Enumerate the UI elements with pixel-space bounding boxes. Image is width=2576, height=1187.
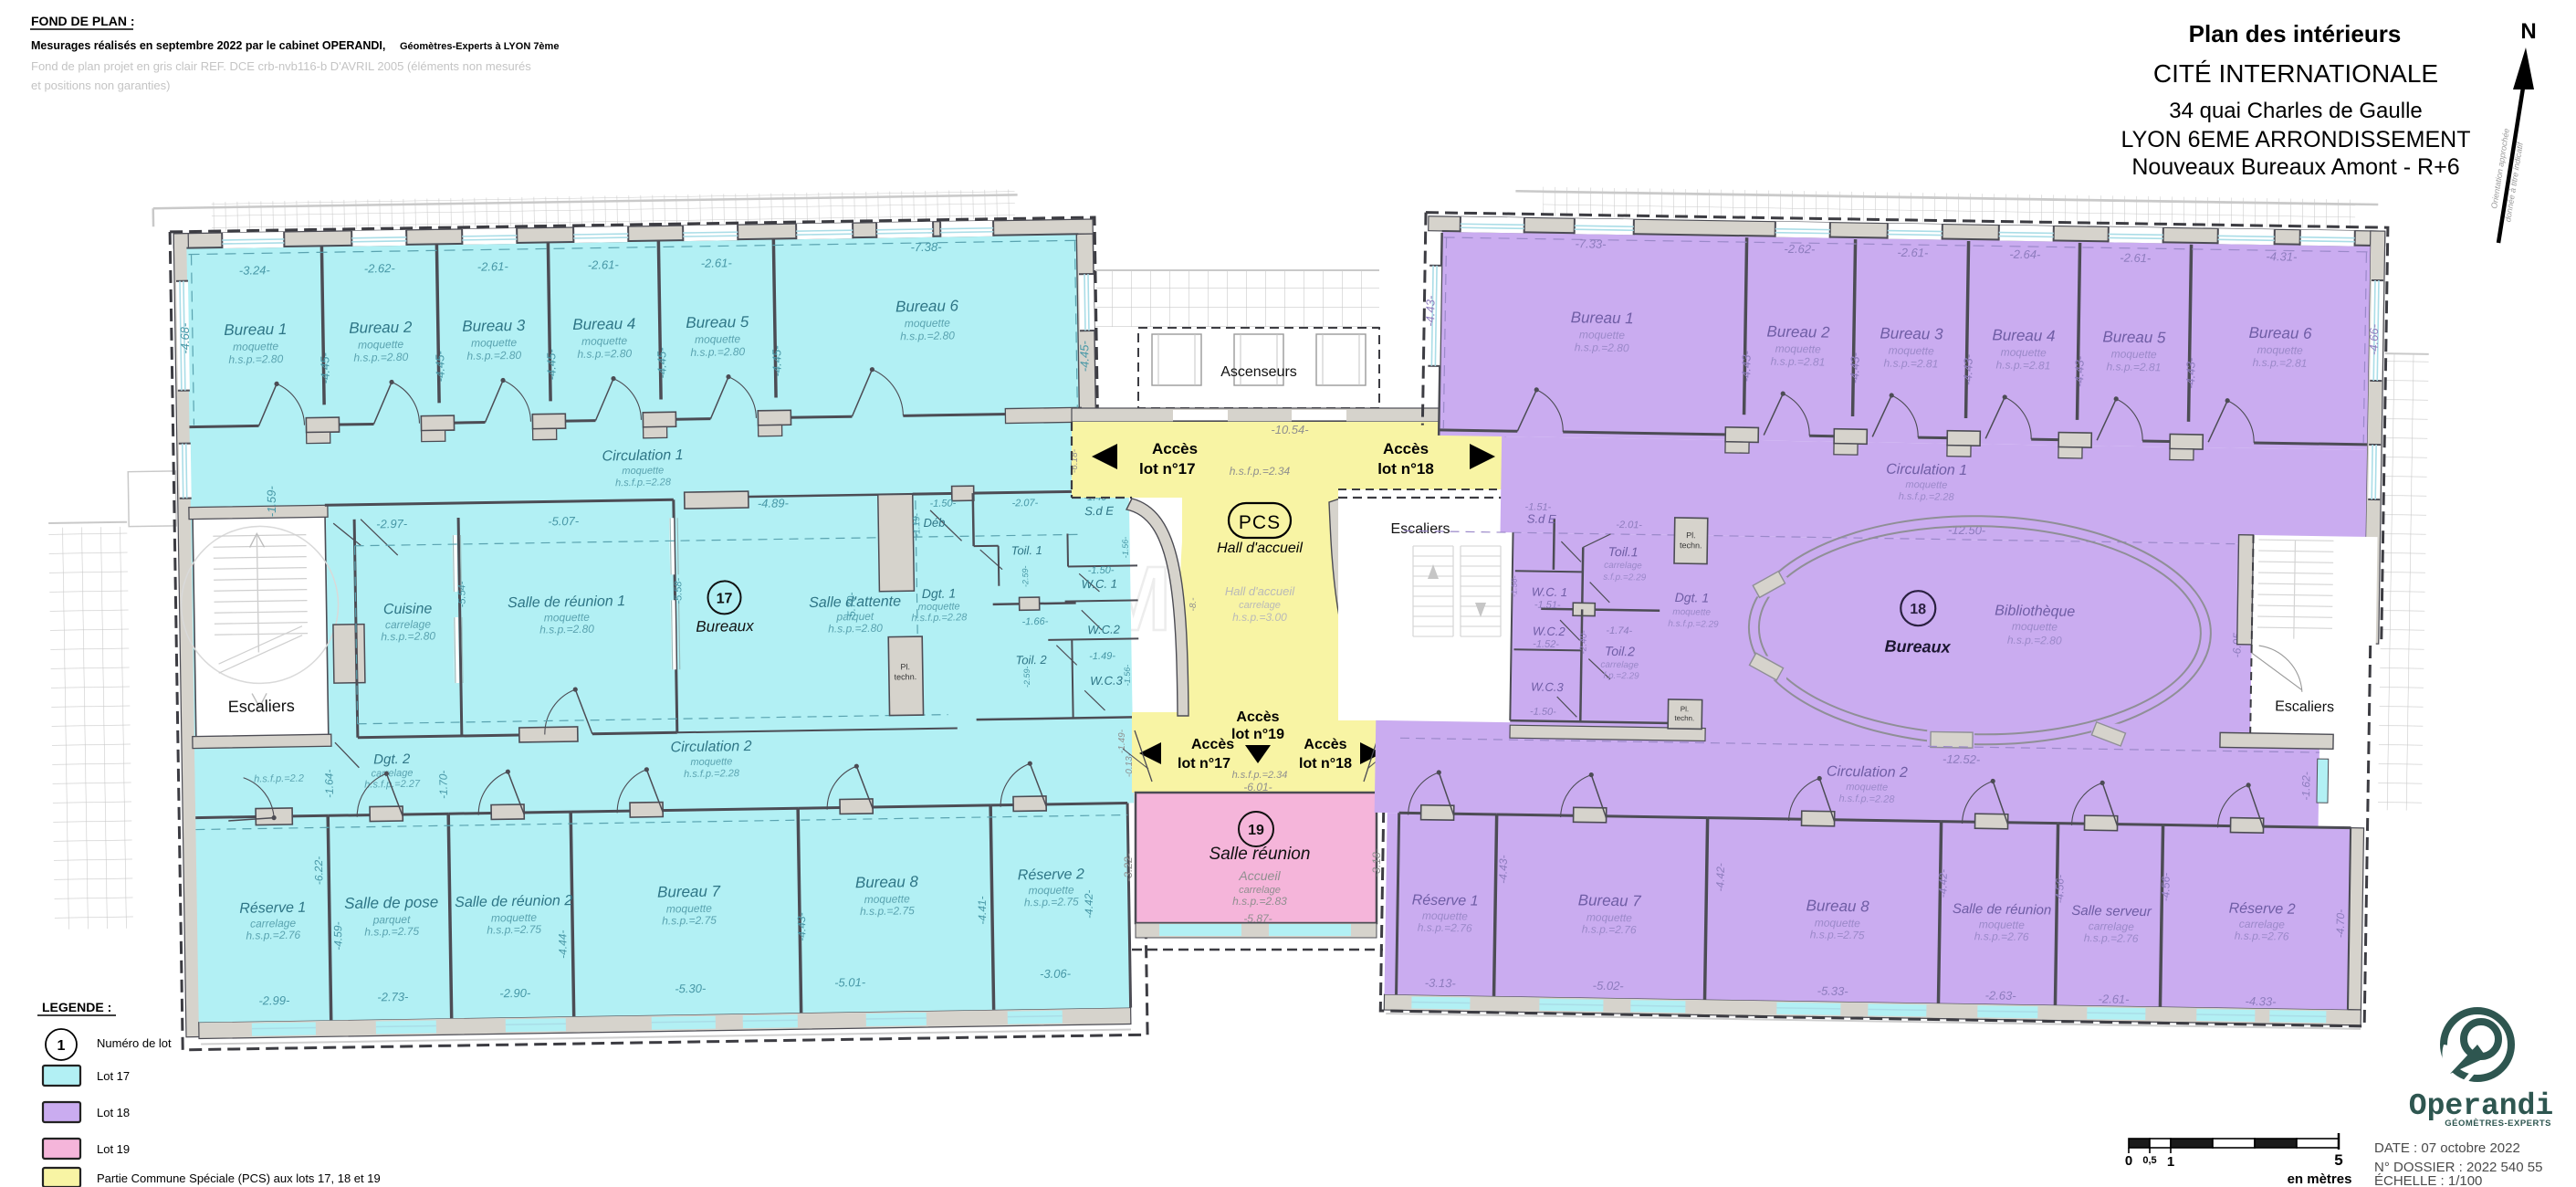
svg-text:PCS: PCS xyxy=(1239,512,1281,533)
svg-text:h.s.p.=2.75: h.s.p.=2.75 xyxy=(1024,895,1079,909)
svg-text:-2.99-: -2.99- xyxy=(258,993,290,1008)
svg-text:ÉCHELLE : 1/100: ÉCHELLE : 1/100 xyxy=(2374,1173,2482,1187)
svg-text:-1.64-: -1.64- xyxy=(322,769,335,798)
svg-text:5: 5 xyxy=(2334,1151,2342,1169)
svg-text:LYON 6EME ARRONDISSEMENT: LYON 6EME ARRONDISSEMENT xyxy=(2121,127,2471,152)
svg-text:-3.06-: -3.06- xyxy=(1040,967,1072,982)
svg-text:-1.49-: -1.49- xyxy=(1117,729,1127,753)
svg-text:h.s.p.=2.76: h.s.p.=2.76 xyxy=(2084,931,2139,945)
svg-text:Salle de réunion 1: Salle de réunion 1 xyxy=(508,593,625,611)
svg-text:f.p.=2.29: f.p.=2.29 xyxy=(1603,671,1639,682)
svg-text:h.s.p.=2.80: h.s.p.=2.80 xyxy=(228,352,283,366)
svg-text:-2.07-: -2.07- xyxy=(1011,498,1038,509)
svg-text:Salle de pose: Salle de pose xyxy=(344,893,438,912)
svg-text:moquette: moquette xyxy=(1579,328,1626,341)
svg-text:-1.49-: -1.49- xyxy=(1089,651,1115,662)
svg-text:Circulation 2: Circulation 2 xyxy=(670,739,751,755)
svg-text:h.s.p.=2.80: h.s.p.=2.80 xyxy=(1575,341,1629,354)
svg-text:Bureau 7: Bureau 7 xyxy=(657,883,721,901)
svg-text:N: N xyxy=(2520,19,2536,44)
svg-text:s.f.p.=2.29: s.f.p.=2.29 xyxy=(1603,572,1647,583)
svg-text:LEGENDE :: LEGENDE : xyxy=(42,1000,111,1014)
svg-text:h.s.p.=2.80: h.s.p.=2.80 xyxy=(381,629,435,643)
svg-text:h.s.p.=2.75: h.s.p.=2.75 xyxy=(487,923,541,937)
svg-text:19: 19 xyxy=(1248,823,1264,838)
svg-text:S.d E: S.d E xyxy=(1527,511,1556,526)
svg-text:h.s.p.=2.81: h.s.p.=2.81 xyxy=(1995,358,2050,372)
svg-text:Bureau 4: Bureau 4 xyxy=(1992,326,2055,344)
svg-text:FOND DE PLAN :: FOND DE PLAN : xyxy=(31,14,135,28)
svg-text:moquette: moquette xyxy=(358,338,404,352)
svg-text:-1.62-: -1.62- xyxy=(2299,772,2312,801)
svg-text:W.C. 1: W.C. 1 xyxy=(1082,577,1117,592)
svg-text:Escaliers: Escaliers xyxy=(228,697,295,716)
svg-text:-1.51-: -1.51- xyxy=(1534,600,1561,611)
svg-text:techn.: techn. xyxy=(1674,714,1694,722)
svg-text:W.C.3: W.C.3 xyxy=(1090,674,1124,688)
svg-text:-4.59-: -4.59- xyxy=(331,921,344,951)
svg-text:Bureau 4: Bureau 4 xyxy=(572,315,635,333)
svg-text:h.s.p.=2.81: h.s.p.=2.81 xyxy=(2253,356,2308,370)
svg-text:h.s.p.=2.80: h.s.p.=2.80 xyxy=(577,347,632,361)
svg-text:Salle réunion: Salle réunion xyxy=(1209,845,1311,864)
svg-text:Mesurages réalisés en septembr: Mesurages réalisés en septembre 2022 par… xyxy=(31,39,385,52)
svg-text:Escaliers: Escaliers xyxy=(2275,699,2334,715)
svg-text:-2.64-: -2.64- xyxy=(2009,247,2041,262)
svg-text:Cuisine: Cuisine xyxy=(383,601,433,617)
svg-text:h.s.p.=2.80: h.s.p.=2.80 xyxy=(690,345,745,359)
svg-text:-4.66-: -4.66- xyxy=(2367,323,2382,355)
svg-text:Accès: Accès xyxy=(1152,440,1198,457)
svg-text:h.s.p.=2.80: h.s.p.=2.80 xyxy=(539,623,594,636)
svg-text:-4.42-: -4.42- xyxy=(1083,889,1095,919)
svg-text:Pl.: Pl. xyxy=(1681,705,1689,713)
svg-text:moquette: moquette xyxy=(1905,479,1947,491)
svg-text:-4.45-: -4.45- xyxy=(318,352,332,384)
svg-text:-2.61-: -2.61- xyxy=(2098,992,2130,1006)
svg-text:W.C.2: W.C.2 xyxy=(1533,625,1566,639)
svg-text:-1.56-: -1.56- xyxy=(1121,537,1130,559)
svg-text:Bureau 6: Bureau 6 xyxy=(895,297,959,315)
svg-text:Lot 19: Lot 19 xyxy=(97,1142,130,1156)
svg-text:0: 0 xyxy=(2125,1153,2132,1169)
svg-text:Pl.: Pl. xyxy=(900,662,910,671)
svg-text:Bureau 3: Bureau 3 xyxy=(1880,324,1943,342)
svg-text:-3.22-: -3.22- xyxy=(1122,853,1135,881)
svg-text:-5.07-: -5.07- xyxy=(548,514,580,529)
svg-text:Géomètres-Experts à LYON 7ème: Géomètres-Experts à LYON 7ème xyxy=(400,41,559,52)
svg-text:-2.97-: -2.97- xyxy=(376,517,408,531)
svg-text:Bureau 3: Bureau 3 xyxy=(462,317,526,335)
svg-text:h.s.p.=2.75: h.s.p.=2.75 xyxy=(1810,928,1865,941)
svg-text:Lot 18: Lot 18 xyxy=(97,1106,130,1119)
svg-text:GÉOMÈTRES-EXPERTS: GÉOMÈTRES-EXPERTS xyxy=(2445,1119,2551,1129)
svg-text:moquette: moquette xyxy=(695,332,741,346)
svg-text:-4.70-: -4.70- xyxy=(2334,909,2347,939)
svg-text:h.s.p.=3.00: h.s.p.=3.00 xyxy=(1232,611,1287,624)
svg-text:h.s.f.p.=2.34: h.s.f.p.=2.34 xyxy=(1230,465,1291,478)
svg-text:moquette: moquette xyxy=(471,336,518,350)
svg-text:-6.22-: -6.22- xyxy=(312,856,325,886)
svg-text:Accueil: Accueil xyxy=(1238,868,1281,883)
svg-text:-12.50-: -12.50- xyxy=(1948,523,1986,538)
svg-text:Réserve 1: Réserve 1 xyxy=(239,900,306,917)
svg-text:h.s.f.p.=2.28: h.s.f.p.=2.28 xyxy=(1838,793,1895,805)
svg-text:Accès: Accès xyxy=(1383,440,1429,457)
svg-text:-2.01-: -2.01- xyxy=(1616,520,1642,530)
svg-text:lot n°18: lot n°18 xyxy=(1377,460,1434,478)
svg-text:-1.51-: -1.51- xyxy=(1524,501,1551,512)
svg-text:-2.61-: -2.61- xyxy=(588,257,620,272)
svg-text:-2.61-: -2.61- xyxy=(477,259,509,274)
svg-text:Bureau 5: Bureau 5 xyxy=(686,313,749,331)
svg-text:-5.30-: -5.30- xyxy=(675,982,707,996)
svg-text:1: 1 xyxy=(58,1038,66,1054)
svg-text:Circulation 1: Circulation 1 xyxy=(602,447,683,464)
svg-text:Salle de réunion: Salle de réunion xyxy=(1953,901,2052,919)
svg-text:h.s.p.=2.76: h.s.p.=2.76 xyxy=(246,929,300,942)
svg-text:h.s.f.p.=2.28: h.s.f.p.=2.28 xyxy=(1899,491,1955,503)
svg-text:h.s.f.p.=2.28: h.s.f.p.=2.28 xyxy=(684,768,740,780)
svg-text:lot n°17: lot n°17 xyxy=(1139,460,1196,478)
svg-text:-4.45-: -4.45- xyxy=(654,347,669,379)
svg-text:34 quai Charles de Gaulle: 34 quai Charles de Gaulle xyxy=(2169,99,2423,123)
svg-text:-1.56-: -1.56- xyxy=(1509,575,1518,597)
svg-text:-4.42-: -4.42- xyxy=(1713,863,1726,892)
svg-text:h.s.p.=2.80: h.s.p.=2.80 xyxy=(828,622,883,636)
svg-text:Toil.2: Toil.2 xyxy=(1605,644,1635,659)
svg-text:moquette: moquette xyxy=(1775,342,1822,356)
svg-text:carrelage: carrelage xyxy=(1604,561,1642,572)
svg-text:-3.18-: -3.18- xyxy=(1370,848,1383,877)
svg-text:1: 1 xyxy=(2167,1154,2174,1170)
svg-text:-1.52-: -1.52- xyxy=(1533,639,1559,650)
svg-text:Bureau 6: Bureau 6 xyxy=(2248,324,2312,342)
svg-text:-4.45-: -4.45- xyxy=(544,349,559,381)
svg-text:Réserve 2: Réserve 2 xyxy=(1018,867,1084,883)
svg-text:-4.56-: -4.56- xyxy=(2159,873,2172,902)
svg-text:-2.61-: -2.61- xyxy=(701,256,733,270)
svg-text:-12.52-: -12.52- xyxy=(1942,752,1981,767)
svg-text:-7.33-: -7.33- xyxy=(1575,236,1607,251)
svg-text:-4.45-: -4.45- xyxy=(433,351,447,383)
svg-text:Accès: Accès xyxy=(1304,737,1346,752)
svg-text:h.s.p.=2.81: h.s.p.=2.81 xyxy=(1884,357,1939,371)
svg-text:h.s.p.=2.75: h.s.p.=2.75 xyxy=(364,925,419,939)
svg-text:-5.70-: -5.70- xyxy=(844,592,857,621)
svg-text:18: 18 xyxy=(1910,602,1926,617)
svg-text:moquette: moquette xyxy=(581,334,628,348)
svg-text:lot n°19: lot n°19 xyxy=(1231,727,1284,742)
svg-text:-5.33-: -5.33- xyxy=(1817,983,1849,998)
svg-text:Partie Commune Spéciale (PCS): Partie Commune Spéciale (PCS) aux lots 1… xyxy=(97,1171,381,1185)
svg-text:-4.31-: -4.31- xyxy=(2266,249,2298,264)
svg-text:-1.50-: -1.50- xyxy=(929,498,956,509)
svg-text:h.s.p.=2.81: h.s.p.=2.81 xyxy=(1771,355,1826,369)
svg-text:-4.43-: -4.43- xyxy=(2183,357,2198,389)
svg-text:-1.74-: -1.74- xyxy=(1606,625,1632,636)
svg-text:moquette: moquette xyxy=(233,340,279,353)
svg-text:Fond de plan projet en gris cl: Fond de plan projet en gris clair REF. D… xyxy=(31,59,531,73)
svg-text:h.s.p.=2.76: h.s.p.=2.76 xyxy=(2235,930,2289,943)
svg-text:-4.43-: -4.43- xyxy=(2072,355,2087,387)
svg-text:-1.70-: -1.70- xyxy=(436,771,449,800)
svg-text:-4.43-: -4.43- xyxy=(1496,855,1509,884)
svg-text:Dgt. 2: Dgt. 2 xyxy=(373,751,411,768)
svg-text:-5.58-: -5.58- xyxy=(673,577,684,604)
svg-text:-5.01-: -5.01- xyxy=(834,975,866,990)
svg-text:-3.13-: -3.13- xyxy=(1425,976,1457,991)
svg-text:Salle de réunion 2: Salle de réunion 2 xyxy=(455,893,572,910)
svg-text:0,5: 0,5 xyxy=(2142,1155,2156,1166)
svg-text:Bureau 5: Bureau 5 xyxy=(2102,328,2166,346)
svg-text:Déb.: Déb. xyxy=(923,516,948,530)
svg-text:-2.90-: -2.90- xyxy=(499,986,531,1001)
svg-text:W.C.3: W.C.3 xyxy=(1531,680,1565,695)
svg-text:-2.62-: -2.62- xyxy=(364,261,396,276)
svg-text:Dgt. 1: Dgt. 1 xyxy=(1675,590,1710,605)
svg-text:S.d E: S.d E xyxy=(1084,504,1114,519)
svg-text:Circulation 2: Circulation 2 xyxy=(1827,764,1908,781)
svg-text:h.s.p.=2.76: h.s.p.=2.76 xyxy=(1582,922,1637,936)
svg-text:moquette: moquette xyxy=(2012,620,2058,634)
svg-text:-2.59-: -2.59- xyxy=(1021,565,1030,587)
svg-text:Ascenseurs: Ascenseurs xyxy=(1220,364,1297,380)
svg-text:-4.42-: -4.42- xyxy=(1936,869,1949,898)
svg-text:Accès: Accès xyxy=(1236,709,1279,725)
svg-text:Numéro de lot: Numéro de lot xyxy=(97,1036,172,1050)
svg-text:-4.56-: -4.56- xyxy=(2053,875,2066,904)
svg-text:-4.68-: -4.68- xyxy=(178,322,193,354)
svg-text:-1.19-: -1.19- xyxy=(912,512,922,537)
svg-text:techn.: techn. xyxy=(1680,541,1702,550)
svg-text:CITÉ INTERNATIONALE: CITÉ INTERNATIONALE xyxy=(2153,59,2438,88)
svg-text:-2.61-: -2.61- xyxy=(1897,246,1929,260)
svg-text:DATE : 07 octobre 2022: DATE : 07 octobre 2022 xyxy=(2374,1140,2520,1156)
svg-text:-2.62-: -2.62- xyxy=(1784,242,1816,257)
svg-text:Toil. 2: Toil. 2 xyxy=(1015,653,1047,667)
svg-text:moquette: moquette xyxy=(1672,607,1711,618)
svg-text:moquette: moquette xyxy=(1846,782,1888,793)
svg-text:Bureaux: Bureaux xyxy=(696,617,754,636)
svg-text:-2.61-: -2.61- xyxy=(2120,251,2152,266)
svg-text:moquette: moquette xyxy=(2257,343,2304,357)
svg-text:h.s.f.p.=2.28: h.s.f.p.=2.28 xyxy=(911,612,968,624)
svg-text:carrelage: carrelage xyxy=(371,768,413,780)
svg-text:Dgt. 1: Dgt. 1 xyxy=(922,585,957,601)
svg-text:moquette: moquette xyxy=(2001,346,2047,360)
svg-text:et positions non garanties): et positions non garanties) xyxy=(31,79,170,92)
svg-text:Nouveaux Bureaux Amont - R+6: Nouveaux Bureaux Amont - R+6 xyxy=(2131,154,2459,180)
svg-text:Lot 17: Lot 17 xyxy=(97,1069,130,1083)
svg-text:h.s.p.=2.80: h.s.p.=2.80 xyxy=(900,329,955,342)
svg-text:-1.56-: -1.56- xyxy=(1123,665,1132,687)
svg-text:h.s.f.p.=2.28: h.s.f.p.=2.28 xyxy=(615,477,672,488)
svg-text:en mètres: en mètres xyxy=(2288,1171,2352,1187)
svg-text:lot n°18: lot n°18 xyxy=(1299,756,1352,772)
svg-text:Réserve 1: Réserve 1 xyxy=(1412,893,1479,909)
svg-text:lot n°17: lot n°17 xyxy=(1178,756,1230,772)
svg-text:-4.44-: -4.44- xyxy=(556,930,569,959)
svg-text:Toil. 1: Toil. 1 xyxy=(1011,543,1042,558)
svg-text:Hall d'accueil: Hall d'accueil xyxy=(1225,584,1295,598)
svg-text:Bureau 7: Bureau 7 xyxy=(1578,891,1642,909)
svg-text:h.s.p.=2.80: h.s.p.=2.80 xyxy=(466,349,521,362)
svg-text:-4.41-: -4.41- xyxy=(976,896,989,925)
svg-text:Hall d'accueil: Hall d'accueil xyxy=(1217,541,1303,556)
svg-text:-4.43-: -4.43- xyxy=(1848,352,1862,383)
svg-text:Plan des intérieurs: Plan des intérieurs xyxy=(2189,20,2402,47)
svg-text:Bureaux: Bureaux xyxy=(1884,637,1951,657)
svg-text:-7.38-: -7.38- xyxy=(910,240,942,255)
svg-text:h.s.p.=2.83: h.s.p.=2.83 xyxy=(1232,895,1287,908)
svg-text:W.C.2: W.C.2 xyxy=(1087,623,1121,637)
svg-text:h.s.f.p.=2.2: h.s.f.p.=2.2 xyxy=(254,773,304,785)
svg-text:-5.54-: -5.54- xyxy=(456,581,467,607)
svg-text:Bureau 1: Bureau 1 xyxy=(224,320,287,339)
svg-text:Bureau 2: Bureau 2 xyxy=(1766,323,1830,341)
svg-text:moquette: moquette xyxy=(1889,344,1935,358)
svg-text:moquette: moquette xyxy=(918,601,960,613)
svg-text:-1.59-: -1.59- xyxy=(265,485,279,517)
svg-text:-1.50-: -1.50- xyxy=(1530,707,1556,718)
svg-text:h.s.f.p.=2.34: h.s.f.p.=2.34 xyxy=(1232,770,1288,781)
svg-text:h.s.p.=2.76: h.s.p.=2.76 xyxy=(1974,930,2029,943)
svg-text:Bureau 8: Bureau 8 xyxy=(855,873,919,891)
svg-text:h.s.p.=2.80: h.s.p.=2.80 xyxy=(353,351,408,364)
svg-text:-1.66-: -1.66- xyxy=(1021,616,1048,627)
svg-text:-4.45-: -4.45- xyxy=(770,345,784,377)
svg-text:carrelage: carrelage xyxy=(1600,660,1639,671)
svg-text:-4.45-: -4.45- xyxy=(1077,340,1092,372)
svg-text:moquette: moquette xyxy=(690,756,732,768)
svg-text:moquette: moquette xyxy=(2111,347,2158,361)
svg-text:Bibliothèque: Bibliothèque xyxy=(1995,604,2075,620)
svg-text:-4.43-: -4.43- xyxy=(1961,353,1975,385)
svg-text:Circulation 1: Circulation 1 xyxy=(1886,462,1967,478)
svg-text:-4.33-: -4.33- xyxy=(2245,994,2277,1009)
svg-text:techn.: techn. xyxy=(895,672,917,681)
svg-text:-4.43-: -4.43- xyxy=(1739,350,1754,382)
svg-text:h.s.p.=2.75: h.s.p.=2.75 xyxy=(662,914,717,928)
svg-text:Toil.1: Toil.1 xyxy=(1608,544,1639,560)
svg-text:Bureau 8: Bureau 8 xyxy=(1806,897,1869,915)
svg-text:Bureau 2: Bureau 2 xyxy=(349,319,413,337)
svg-text:Pl.: Pl. xyxy=(1686,530,1696,540)
svg-text:Salle serveur: Salle serveur xyxy=(2071,903,2152,919)
svg-text:moquette: moquette xyxy=(622,465,664,477)
svg-text:-2.73-: -2.73- xyxy=(377,990,409,1004)
svg-text:-2.59-: -2.59- xyxy=(1022,666,1031,688)
svg-text:-2.63-: -2.63- xyxy=(1985,988,2017,1003)
svg-text:Bureau 1: Bureau 1 xyxy=(1571,309,1634,327)
svg-text:Accès: Accès xyxy=(1191,737,1234,752)
svg-text:h.s.f.p.=2.29: h.s.f.p.=2.29 xyxy=(1668,619,1719,630)
svg-text:-4.89-: -4.89- xyxy=(758,496,790,510)
svg-text:Réserve 2: Réserve 2 xyxy=(2229,901,2296,918)
svg-text:h.s.p.=2.80: h.s.p.=2.80 xyxy=(2007,634,2062,647)
svg-text:h.s.p.=2.81: h.s.p.=2.81 xyxy=(2106,360,2161,373)
svg-text:carrelage: carrelage xyxy=(1239,600,1281,611)
svg-text:-4.43-: -4.43- xyxy=(795,912,808,941)
svg-text:-8.-: -8.- xyxy=(1189,597,1199,612)
svg-text:moquette: moquette xyxy=(905,317,951,331)
svg-text:17: 17 xyxy=(716,591,732,606)
svg-text:h.s.p.=2.76: h.s.p.=2.76 xyxy=(1418,921,1472,935)
svg-text:-10.54-: -10.54- xyxy=(1271,423,1309,436)
svg-text:-5.02-: -5.02- xyxy=(1593,979,1625,993)
svg-text:W.C. 1: W.C. 1 xyxy=(1532,585,1567,600)
svg-text:h.s.p.=2.75: h.s.p.=2.75 xyxy=(860,904,915,918)
svg-text:-1.50-: -1.50- xyxy=(1088,565,1115,576)
svg-text:-2.40-: -2.40- xyxy=(1578,630,1588,655)
svg-text:Escaliers: Escaliers xyxy=(1391,521,1450,537)
svg-text:-3.24-: -3.24- xyxy=(239,263,271,278)
